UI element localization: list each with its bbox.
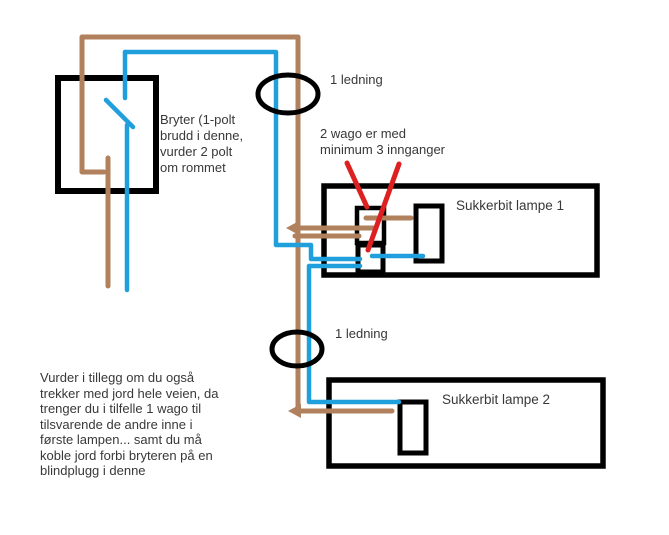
brown-wires — [82, 37, 411, 418]
lamp1-label: Sukkerbit lampe 1 — [456, 198, 564, 214]
wago-note: 2 wago er med minimum 3 innganger — [320, 126, 460, 158]
top-wire-label: 1 ledning — [330, 72, 383, 88]
brown-arrowhead-lamp2 — [288, 404, 301, 418]
switch-note: Bryter (1-polt brudd i denne, vurder 2 p… — [160, 112, 280, 176]
ground-note: Vurder i tillegg om du også trekker med … — [40, 370, 270, 479]
wiring-diagram: Bryter (1-polt brudd i denne, vurder 2 p… — [0, 0, 669, 535]
brown-arrowhead-lamp1 — [286, 221, 299, 235]
lamp2-socket-box — [400, 402, 426, 453]
mid-wire-label: 1 ledning — [335, 326, 388, 342]
lamp2-label: Sukkerbit lampe 2 — [442, 392, 550, 408]
lamp1-socket-box — [416, 206, 442, 261]
cable-circle-top — [258, 75, 318, 113]
blue-wire-switch-blade — [106, 100, 133, 127]
